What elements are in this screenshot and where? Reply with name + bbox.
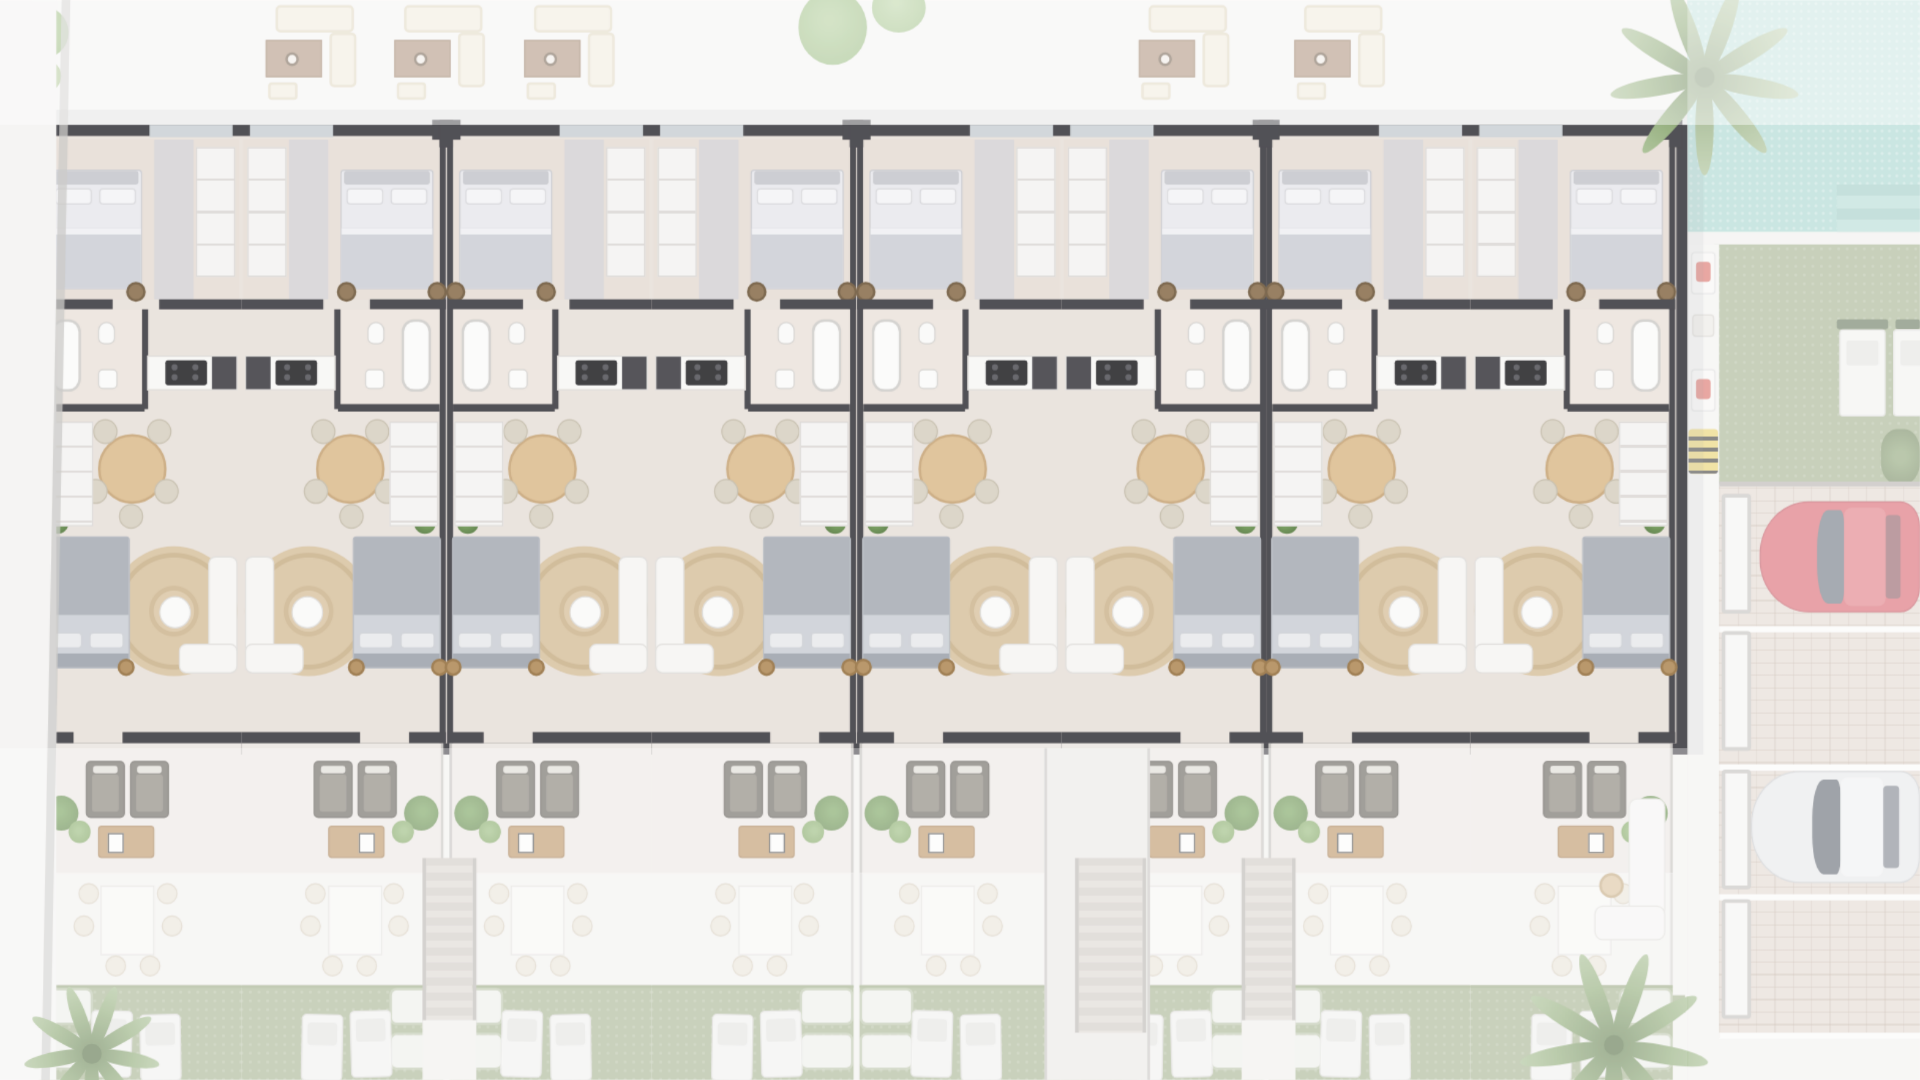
- car-roof: [1845, 508, 1886, 606]
- pillow: [910, 632, 944, 648]
- garden-sun-lounger: [711, 1014, 754, 1080]
- headboard: [1583, 653, 1669, 667]
- parking-entry-pad: [1722, 494, 1751, 614]
- pillow: [89, 632, 123, 648]
- pouf: [1168, 658, 1185, 675]
- outdoor-chair: [550, 955, 571, 976]
- outdoor-chair: [1308, 883, 1329, 904]
- outdoor-sofa-set: [1289, 5, 1397, 100]
- outdoor-chair: [1529, 915, 1550, 936]
- shape: [137, 766, 161, 773]
- terrace-plant: [1212, 821, 1234, 843]
- sink: [918, 369, 938, 389]
- shape: [321, 766, 345, 773]
- white-car: [1751, 771, 1920, 883]
- shape: [305, 364, 311, 370]
- lounge-chair: [950, 761, 989, 818]
- shape: [547, 766, 571, 773]
- shape: [93, 766, 117, 773]
- lounge-chair: [1543, 761, 1582, 818]
- dining-chair: [119, 504, 143, 529]
- stair-core: [389, 422, 438, 527]
- shape: [1422, 364, 1428, 370]
- outdoor-armchair: [397, 82, 426, 99]
- cooktop: [1096, 360, 1138, 385]
- wardrobe: [658, 147, 697, 277]
- pouf: [947, 282, 967, 302]
- exterior-wall: [1062, 732, 1181, 743]
- outdoor-chair: [1177, 955, 1198, 976]
- pouf: [855, 658, 872, 675]
- pillow: [509, 188, 546, 204]
- outdoor-sofa-set: [261, 5, 369, 100]
- apartment-unit-4: [651, 125, 855, 1080]
- pillow: [1329, 188, 1366, 204]
- pillow: [811, 632, 845, 648]
- apartment-unit-1: [37, 125, 241, 1080]
- pillow: [920, 188, 957, 204]
- unit-interior: [1266, 125, 1470, 1080]
- pool-edge: [1687, 232, 1920, 244]
- exterior-wall: [447, 732, 484, 743]
- exterior-wall: [819, 732, 856, 743]
- hallway: [1384, 140, 1423, 300]
- shape: [1125, 364, 1131, 370]
- outdoor-sofa: [329, 32, 356, 87]
- lounge-chair: [86, 761, 125, 818]
- outdoor-chair: [1369, 955, 1390, 976]
- pouf: [938, 658, 955, 675]
- hallway: [1109, 140, 1148, 300]
- dining-chair: [1185, 419, 1209, 444]
- shape: [958, 766, 982, 773]
- coffee-table: [1112, 596, 1144, 628]
- garden-sun-lounger: [349, 1010, 392, 1078]
- outdoor-sofa: [1202, 32, 1229, 87]
- kitchen-counter: [967, 355, 1058, 390]
- lounge-chair: [768, 761, 807, 818]
- blanket: [453, 538, 539, 615]
- parking-entry-pad: [1722, 631, 1751, 751]
- bowl: [1314, 52, 1327, 66]
- second-bed: [353, 536, 441, 668]
- site-plan-stage: [0, 0, 1920, 1080]
- pillow: [359, 632, 393, 648]
- bathtub: [402, 319, 431, 391]
- exterior-wall: [533, 732, 652, 743]
- shape: [715, 374, 721, 380]
- outdoor-chair: [899, 883, 920, 904]
- blanket-fold: [342, 228, 433, 234]
- shape: [992, 364, 998, 370]
- headboard: [863, 653, 949, 667]
- pouf: [536, 282, 556, 302]
- stepping-stone: [1621, 1035, 1670, 1067]
- pouf: [1566, 282, 1586, 302]
- headboard: [453, 653, 539, 667]
- dining-chair: [714, 479, 738, 504]
- shape: [730, 774, 757, 811]
- outdoor-chair: [73, 915, 94, 936]
- wardrobe: [1068, 147, 1107, 277]
- interior-wall: [651, 299, 733, 309]
- lawn-sun-lounger: [1893, 329, 1920, 416]
- sofa: [1065, 644, 1124, 674]
- bowl: [544, 52, 557, 66]
- shape: [1594, 766, 1618, 773]
- exterior-wall: [409, 732, 446, 743]
- pouf: [747, 282, 767, 302]
- pillow: [500, 632, 534, 648]
- sofa: [245, 644, 304, 674]
- lounge-chair: [1587, 761, 1626, 818]
- outdoor-chair: [1551, 955, 1572, 976]
- interior-wall: [569, 299, 651, 309]
- garden-sun-lounger: [139, 1014, 182, 1080]
- interior-wall: [1272, 404, 1374, 411]
- lounge-chair: [724, 761, 763, 818]
- outdoor-corner-sofa: [1629, 798, 1666, 918]
- shape: [1537, 1022, 1567, 1045]
- outdoor-dining-table: [100, 885, 154, 955]
- headboard: [873, 171, 959, 185]
- outdoor-chair: [1386, 883, 1407, 904]
- pillow: [1284, 188, 1321, 204]
- window-glazing: [660, 125, 743, 137]
- stair-core: [864, 422, 913, 527]
- hedge: [1896, 319, 1920, 329]
- outdoor-chair: [1586, 955, 1607, 976]
- second-bed: [452, 536, 540, 668]
- shape: [1401, 374, 1407, 380]
- windshield: [1818, 510, 1845, 603]
- tabletop-tray: [518, 833, 534, 853]
- kitchen-counter: [245, 355, 336, 390]
- outdoor-chair: [383, 883, 404, 904]
- interior-wall: [1062, 299, 1144, 309]
- blanket: [871, 228, 962, 288]
- interior-wall: [241, 299, 323, 309]
- kitchen-cabinet: [1032, 357, 1056, 389]
- outdoor-chair: [715, 883, 736, 904]
- stepping-stone: [802, 990, 851, 1022]
- stepping-stone: [862, 990, 911, 1022]
- lounge-chair: [358, 761, 397, 818]
- sink: [1327, 369, 1347, 389]
- outdoor-chair: [516, 955, 537, 976]
- pillow: [391, 188, 428, 204]
- garden-sun-lounger: [1170, 1010, 1213, 1078]
- double-bed: [1278, 170, 1371, 290]
- outdoor-chair: [105, 955, 126, 976]
- terrace-plant: [392, 821, 414, 843]
- pouf: [758, 658, 775, 675]
- dining-chair: [939, 504, 963, 529]
- outdoor-sofa: [276, 5, 354, 32]
- cooktop: [1505, 360, 1547, 385]
- dining-chair: [529, 504, 553, 529]
- outdoor-chair: [793, 883, 814, 904]
- tabletop-tray: [1179, 833, 1195, 853]
- dining-chair: [311, 419, 335, 444]
- hallway: [975, 140, 1014, 300]
- sink: [508, 369, 528, 389]
- shape: [1013, 364, 1019, 370]
- parking-entry-pad: [1722, 769, 1751, 889]
- shape: [775, 766, 799, 773]
- second-bed: [1271, 536, 1359, 668]
- cooktop: [576, 360, 618, 385]
- outdoor-sofa-set: [519, 5, 627, 100]
- pillow: [347, 188, 384, 204]
- shape: [1104, 374, 1110, 380]
- kitchen-cabinet: [1441, 357, 1465, 389]
- garden-path: [422, 1020, 476, 1080]
- pool-steps: [1837, 185, 1920, 232]
- cooktop: [276, 360, 318, 385]
- pillow: [876, 188, 913, 204]
- dining-chair: [913, 419, 937, 444]
- hedge: [1837, 319, 1888, 329]
- blanket: [752, 228, 843, 288]
- outdoor-chair: [157, 883, 178, 904]
- dining-chair: [557, 419, 581, 444]
- pouf: [348, 658, 365, 675]
- cooktop: [165, 360, 207, 385]
- bathtub: [812, 319, 841, 391]
- shape: [555, 1022, 585, 1045]
- kitchen-cabinet: [246, 357, 270, 389]
- window-glazing: [149, 125, 232, 137]
- outdoor-sofa: [1304, 5, 1382, 32]
- second-bed: [862, 536, 950, 668]
- tabletop-tray: [108, 833, 124, 853]
- shape: [356, 1019, 386, 1042]
- shape: [602, 374, 608, 380]
- wood-coffee-table: [1327, 826, 1383, 858]
- headboard: [1573, 171, 1659, 185]
- unit-interior: [37, 125, 241, 1080]
- shape: [1365, 774, 1392, 811]
- outdoor-chair: [322, 955, 343, 976]
- interior-wall: [863, 404, 965, 411]
- dining-chair: [975, 479, 999, 504]
- dining-chair: [1376, 419, 1400, 444]
- apartment-unit-2: [241, 125, 445, 1080]
- stepping-stone: [802, 1035, 851, 1067]
- stair-core: [1210, 422, 1259, 527]
- dining-chair: [775, 419, 799, 444]
- interior-wall: [1158, 404, 1260, 411]
- stair-core: [454, 422, 503, 527]
- rear-window: [1884, 785, 1899, 868]
- pillow: [465, 188, 502, 204]
- exterior-wall: [1352, 732, 1471, 743]
- terrace-plant: [889, 821, 911, 843]
- shape: [1585, 1019, 1615, 1042]
- terrace-plant: [479, 821, 501, 843]
- tabletop-tray: [769, 833, 785, 853]
- kitchen-counter: [1474, 355, 1565, 390]
- garden-sun-lounger: [760, 1010, 803, 1078]
- tabletop-tray: [1337, 833, 1353, 853]
- lounge-chair: [1359, 761, 1398, 818]
- pillow: [1167, 188, 1204, 204]
- hallway: [1518, 140, 1557, 300]
- blanket-fold: [1280, 228, 1371, 234]
- outdoor-dining-table: [921, 885, 975, 955]
- kitchen-counter: [1376, 355, 1467, 390]
- pillow: [1179, 632, 1213, 648]
- wood-coffee-table: [1558, 826, 1614, 858]
- interior-wall: [1266, 299, 1342, 309]
- bathtub: [1631, 319, 1660, 391]
- shape: [1550, 766, 1574, 773]
- wood-coffee-table: [98, 826, 154, 858]
- lounge-chair: [1315, 761, 1354, 818]
- shape: [1322, 766, 1346, 773]
- outdoor-corner-sofa: [1594, 905, 1665, 940]
- blanket: [1272, 538, 1358, 615]
- lounge-chair: [906, 761, 945, 818]
- headboard: [1164, 171, 1250, 185]
- outdoor-chair: [926, 955, 947, 976]
- floorplan-viewport: [0, 0, 1920, 1080]
- garden-stairs: [1242, 858, 1296, 1025]
- dining-chair: [1131, 419, 1155, 444]
- hallway: [289, 140, 328, 300]
- pouf: [528, 658, 545, 675]
- window-glazing: [1070, 125, 1153, 137]
- second-bed: [763, 536, 851, 668]
- pouf: [1347, 658, 1364, 675]
- pouf: [126, 282, 146, 302]
- garden-sun-lounger: [910, 1010, 953, 1078]
- unit-interior: [651, 125, 855, 1080]
- shape: [1422, 374, 1428, 380]
- interior-wall: [1190, 299, 1266, 309]
- unit-interior: [447, 125, 651, 1080]
- blanket: [342, 228, 433, 288]
- kitchen-cabinet: [1067, 357, 1091, 389]
- garden-sun-lounger: [1368, 1014, 1411, 1080]
- dining-chair: [1322, 419, 1346, 444]
- garden-sun-lounger: [1319, 1010, 1362, 1078]
- shape: [320, 774, 347, 811]
- shape: [774, 774, 801, 811]
- shape: [731, 766, 755, 773]
- shape: [1534, 374, 1540, 380]
- exterior-wall: [1266, 732, 1303, 743]
- hallway: [564, 140, 603, 300]
- windshield: [1812, 780, 1840, 874]
- sink: [1185, 369, 1205, 389]
- toilet: [1597, 322, 1614, 344]
- outdoor-chair: [489, 883, 510, 904]
- stepping-stone: [1621, 990, 1670, 1022]
- dining-chair: [1569, 504, 1593, 529]
- kitchen-counter: [557, 355, 648, 390]
- shape: [1593, 774, 1620, 811]
- outdoor-sofa: [404, 5, 482, 32]
- garden-sun-lounger: [549, 1014, 592, 1080]
- toilet: [918, 322, 935, 344]
- shape: [715, 364, 721, 370]
- outdoor-dining-table: [1330, 885, 1384, 955]
- outdoor-dining-table: [511, 885, 565, 955]
- shape: [1104, 364, 1110, 370]
- headboard: [344, 171, 430, 185]
- pillow: [868, 632, 902, 648]
- pillow: [1588, 632, 1622, 648]
- pillow: [1620, 188, 1657, 204]
- outdoor-sofa: [1358, 32, 1385, 87]
- headboard: [463, 171, 549, 185]
- outdoor-chair: [1335, 955, 1356, 976]
- building-shadow: [1687, 125, 1703, 755]
- second-bed: [1582, 536, 1670, 668]
- garden-path: [1242, 1020, 1296, 1080]
- headboard: [1282, 171, 1368, 185]
- dining-chair: [1348, 504, 1372, 529]
- outdoor-chair: [960, 955, 981, 976]
- pillow: [769, 632, 803, 648]
- window-glazing: [250, 125, 333, 137]
- shape: [582, 374, 588, 380]
- parking-bay-line: [1719, 1033, 1920, 1039]
- window-glazing: [970, 125, 1053, 137]
- shape: [966, 1022, 996, 1045]
- hallway: [154, 140, 193, 300]
- toilet: [778, 322, 795, 344]
- wardrobe: [196, 147, 235, 277]
- blanket-fold: [460, 228, 551, 234]
- shape: [502, 774, 529, 811]
- blanket: [1162, 228, 1253, 288]
- tabletop-tray: [359, 833, 375, 853]
- shape: [1513, 364, 1519, 370]
- pouf: [1356, 282, 1376, 302]
- double-bed: [869, 170, 962, 290]
- shape: [602, 364, 608, 370]
- pouf: [444, 658, 461, 675]
- pillow: [99, 188, 136, 204]
- coffee-table: [291, 596, 323, 628]
- sofa: [655, 644, 714, 674]
- pillow: [1221, 632, 1255, 648]
- outdoor-chair: [1391, 915, 1412, 936]
- pillow: [1576, 188, 1613, 204]
- interior-wall: [857, 299, 933, 309]
- shape: [992, 374, 998, 380]
- wood-coffee-table: [1149, 826, 1205, 858]
- shape: [582, 364, 588, 370]
- shape: [1549, 774, 1576, 811]
- toilet: [508, 322, 525, 344]
- cooktop: [986, 360, 1028, 385]
- interior-wall: [338, 404, 440, 411]
- sink: [365, 369, 385, 389]
- outdoor-armchair: [527, 82, 556, 99]
- second-bed: [1173, 536, 1261, 668]
- outdoor-pouf: [1599, 873, 1623, 898]
- toilet: [367, 322, 384, 344]
- bathtub: [1281, 319, 1310, 391]
- shape: [1375, 1022, 1405, 1045]
- apartment-unit-7: [1266, 125, 1470, 1080]
- garden-sun-lounger: [500, 1010, 543, 1078]
- wardrobe: [606, 147, 645, 277]
